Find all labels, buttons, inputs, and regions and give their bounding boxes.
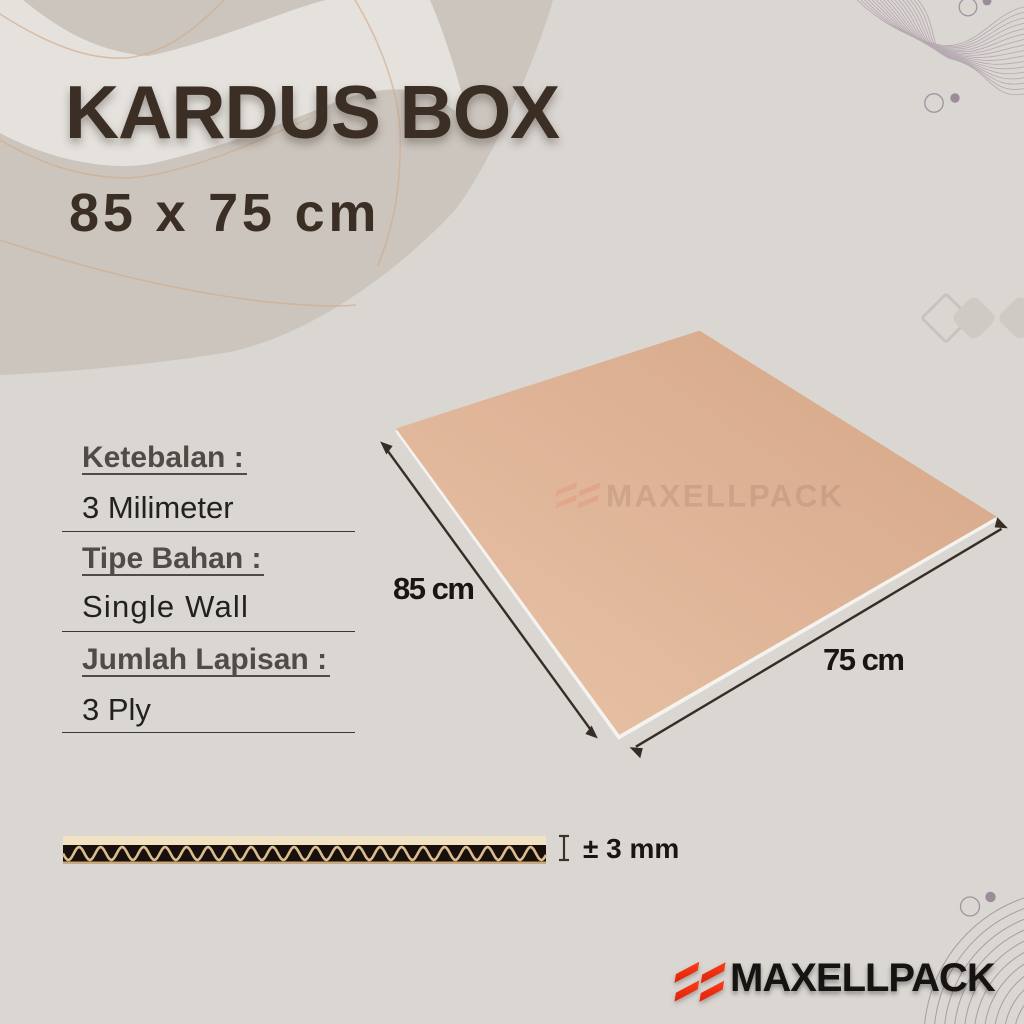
svg-text:MAXELLPACK: MAXELLPACK <box>606 478 844 514</box>
